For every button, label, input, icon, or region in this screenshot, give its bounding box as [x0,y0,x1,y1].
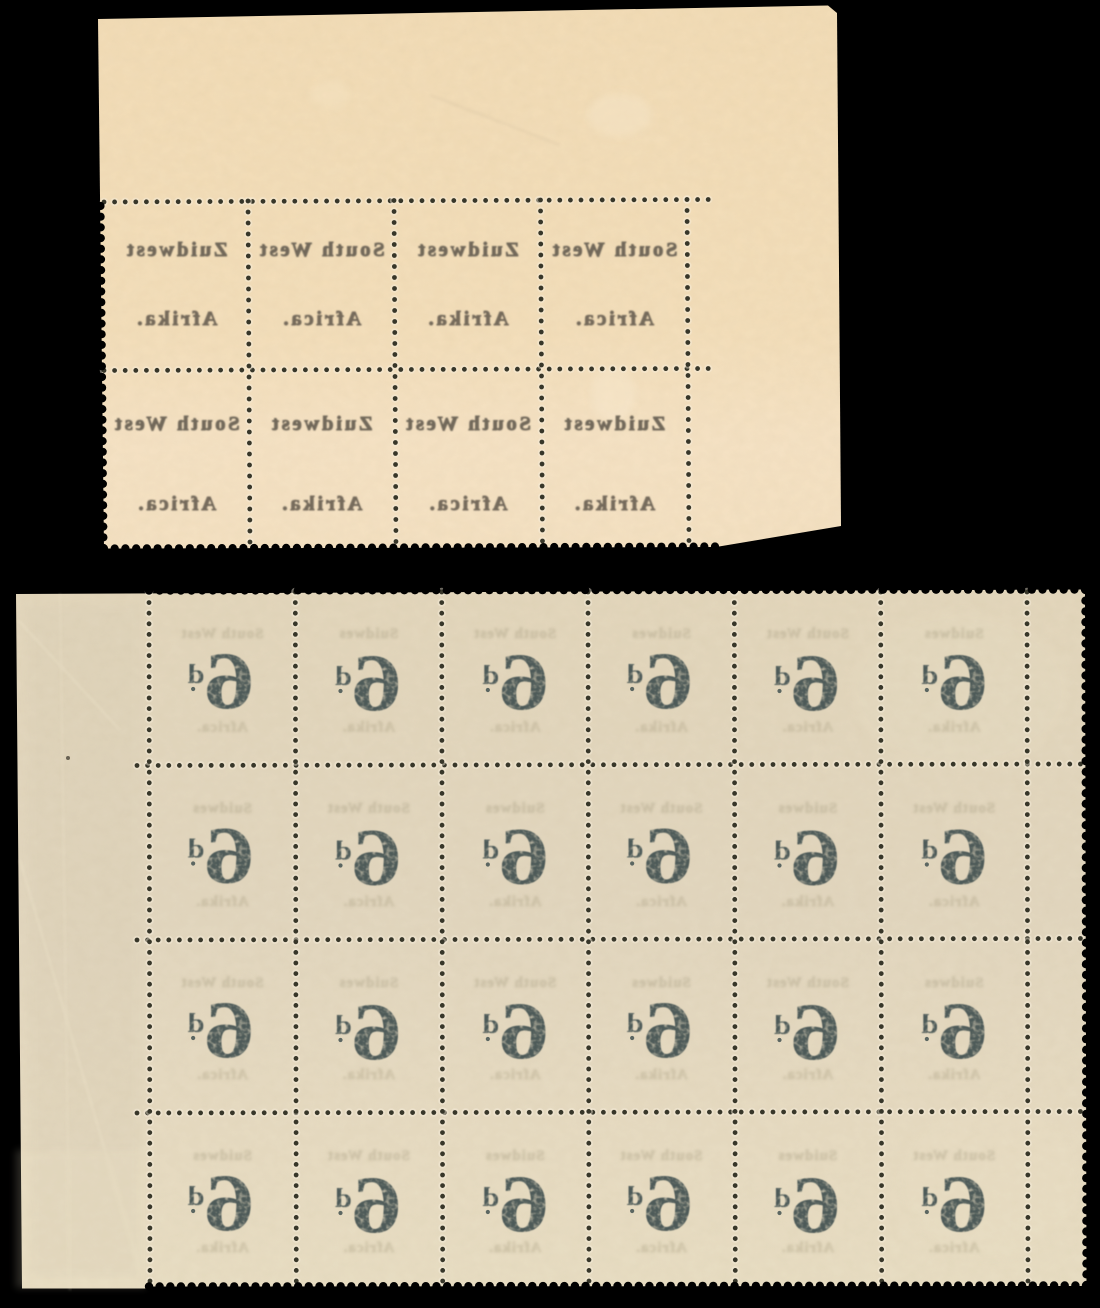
svg-text:Zuidwest: Zuidwest [269,413,372,435]
svg-text:6: 6 [790,985,840,1076]
svg-text:d: d [335,1183,352,1213]
svg-text:6: 6 [643,634,693,725]
svg-text:d: d [482,1182,499,1212]
svg-text:6: 6 [204,1156,254,1247]
svg-text:d: d [188,834,205,864]
svg-text:South West: South West [404,413,531,435]
svg-text:d: d [774,1010,791,1040]
svg-text:6: 6 [790,1158,840,1249]
svg-text:6: 6 [643,1156,693,1247]
svg-text:d: d [921,1009,938,1039]
svg-text:d: d [482,1009,499,1039]
svg-text:6: 6 [499,635,549,726]
svg-text:6: 6 [204,809,254,900]
svg-text:6: 6 [351,1158,401,1249]
svg-text:d: d [774,836,791,866]
svg-text:6: 6 [499,984,549,1075]
svg-text:Zuidwest: Zuidwest [124,239,227,261]
svg-text:Africa.: Africa. [574,308,655,330]
svg-text:6: 6 [790,811,840,902]
svg-text:d: d [627,1008,644,1038]
svg-text:6: 6 [938,810,988,901]
svg-text:d: d [335,1010,352,1040]
svg-text:Afrika.: Afrika. [135,308,218,330]
svg-text:d: d [921,835,938,865]
svg-text:South West: South West [112,413,239,435]
svg-text:d: d [335,836,352,866]
svg-text:6: 6 [204,983,254,1074]
svg-text:6: 6 [499,810,549,901]
svg-text:6: 6 [643,809,693,900]
svg-text:d: d [921,660,938,690]
svg-text:d: d [774,1183,791,1213]
svg-text:6: 6 [938,984,988,1075]
svg-text:d: d [921,1182,938,1212]
svg-text:d: d [627,659,644,689]
svg-text:Afrika.: Afrika. [426,308,509,330]
svg-text:Afrika.: Afrika. [280,493,363,515]
svg-text:6: 6 [938,1157,988,1248]
svg-text:Africa.: Africa. [136,493,217,515]
svg-text:Afrika.: Afrika. [572,493,655,515]
svg-text:6: 6 [204,634,254,725]
svg-text:Zuidwest: Zuidwest [562,413,665,435]
svg-text:6: 6 [790,636,840,727]
svg-text:6: 6 [643,983,693,1074]
svg-text:d: d [188,659,205,689]
svg-text:d: d [482,660,499,690]
svg-text:6: 6 [938,635,988,726]
svg-text:d: d [774,661,791,691]
svg-text:South West: South West [550,239,677,261]
svg-text:6: 6 [351,811,401,902]
svg-text:6: 6 [351,985,401,1076]
svg-text:Africa.: Africa. [427,493,508,515]
svg-text:Africa.: Africa. [281,308,362,330]
svg-text:d: d [627,834,644,864]
svg-text:d: d [335,661,352,691]
svg-text:d: d [627,1181,644,1211]
svg-text:6: 6 [499,1157,549,1248]
svg-text:d: d [188,1008,205,1038]
svg-text:d: d [188,1181,205,1211]
svg-text:South West: South West [257,239,384,261]
svg-text:Zuidwest: Zuidwest [416,239,519,261]
svg-text:d: d [482,835,499,865]
svg-text:6: 6 [351,636,401,727]
